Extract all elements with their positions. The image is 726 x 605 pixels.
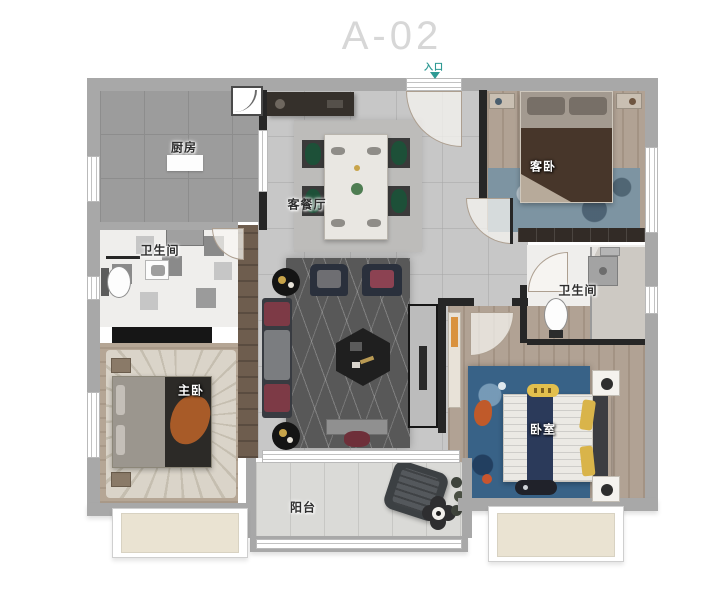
dining-table	[324, 134, 388, 240]
nightstand-decor	[495, 98, 502, 105]
nightstand	[111, 358, 131, 373]
wall-segment	[462, 78, 658, 91]
dining-chair	[302, 140, 324, 168]
dining-chair	[388, 186, 410, 216]
chair-cushion	[391, 141, 407, 165]
room-label-master-bedroom: 主卧	[178, 382, 204, 399]
room-label-bathroom-right: 卫生间	[558, 282, 597, 299]
wall-segment	[479, 90, 487, 198]
place-setting	[367, 219, 381, 227]
chair-cushion	[391, 189, 407, 213]
yellow-toy	[527, 384, 559, 397]
toilet-icon	[101, 262, 131, 302]
pillow	[116, 425, 125, 455]
pillow	[527, 97, 565, 115]
cabinet-decor	[327, 100, 343, 108]
coffee-table-decor	[360, 356, 375, 365]
room-label-bathroom-left: 卫生间	[140, 242, 179, 259]
window	[645, 147, 658, 233]
wall-segment	[462, 458, 472, 538]
sofa-cushion	[264, 302, 290, 326]
kitchen-label-box	[167, 155, 203, 171]
nightstand-decor	[629, 98, 636, 105]
room-label-balcony: 阳台	[290, 499, 316, 516]
nightstand	[616, 93, 642, 109]
side-table	[272, 422, 300, 450]
tv-icon	[419, 346, 427, 390]
room-label-kids-bedroom: 卧室	[530, 421, 556, 438]
nightstand-plant	[601, 484, 613, 496]
plant-icon	[451, 477, 462, 488]
tile	[140, 292, 158, 310]
table-centerpiece	[351, 183, 363, 195]
nightstand	[592, 476, 620, 502]
entrance-arrow-icon	[430, 72, 440, 79]
wall-segment	[520, 285, 527, 343]
table-dot	[436, 511, 441, 516]
kids-wardrobe	[448, 312, 461, 408]
sliding-door	[262, 450, 460, 463]
bay-window	[112, 508, 248, 558]
floor-plan: A-02 入口	[0, 0, 726, 605]
room-label-guest-bedroom: 客卧	[530, 158, 556, 175]
bathroom-sink	[600, 247, 620, 256]
nightstand	[111, 472, 131, 487]
balcony-window	[256, 539, 462, 549]
coffee-table-decor	[352, 362, 360, 368]
pillow	[569, 97, 607, 115]
door-leaf	[510, 198, 513, 244]
chair-cushion	[305, 143, 321, 165]
place-setting	[367, 147, 381, 155]
rug-fish-decor	[474, 400, 492, 426]
sofa-cushion	[264, 330, 290, 380]
nightstand	[489, 93, 515, 109]
bay-window	[488, 506, 624, 562]
rug-dot	[498, 382, 506, 390]
tile	[214, 262, 232, 280]
armchair	[362, 264, 402, 296]
sofa-cushion	[264, 384, 290, 412]
toilet-bowl	[107, 266, 131, 298]
place-setting	[331, 147, 345, 155]
rug-dot	[482, 474, 492, 484]
side-table-decor	[288, 282, 294, 288]
wall-segment	[512, 298, 528, 306]
toilet-icon	[542, 298, 570, 340]
window	[87, 392, 100, 458]
guest-bed	[520, 91, 613, 203]
dining-chair	[388, 138, 410, 168]
room-label-living-dining: 客餐厅	[287, 196, 326, 213]
nightstand-plant	[601, 378, 613, 390]
door-symbol-arc	[235, 90, 257, 112]
toilet-tank	[549, 330, 563, 338]
coffee-table-decor	[350, 342, 362, 351]
door-symbol-icon	[231, 86, 263, 116]
navy-runner	[527, 394, 553, 482]
toy-dots	[534, 388, 552, 393]
table-decor	[354, 165, 360, 171]
side-table-decor	[278, 276, 286, 284]
wall-segment	[527, 339, 645, 345]
bay-window-sill	[121, 513, 239, 553]
cabinet-decor	[275, 99, 285, 109]
page-title: A-02	[58, 14, 726, 59]
whale-toy	[515, 480, 557, 495]
shower-drain	[599, 267, 607, 275]
wall-segment	[106, 256, 140, 259]
sideboard-cabinet	[267, 92, 354, 116]
armchair	[310, 264, 348, 296]
entrance-door-opening	[406, 78, 462, 91]
wall-segment	[259, 192, 267, 230]
armchair-cushion	[317, 270, 341, 288]
side-table-decor	[287, 437, 293, 443]
window	[645, 286, 658, 314]
pillow	[116, 385, 125, 415]
guest-wardrobe	[518, 228, 645, 242]
toy-eye	[523, 485, 528, 490]
kids-bed	[503, 394, 611, 482]
place-setting	[331, 219, 345, 227]
toilet-bowl	[544, 298, 568, 332]
wardrobe-accent	[451, 317, 458, 347]
bay-window-sill	[497, 513, 615, 557]
sofa	[262, 298, 292, 418]
master-wardrobe	[112, 327, 212, 343]
pouf	[344, 431, 370, 447]
window	[87, 276, 100, 300]
nightstand	[592, 370, 620, 396]
room-label-kitchen: 厨房	[171, 139, 197, 156]
tv-console	[408, 304, 438, 428]
kitchen-door	[258, 130, 268, 192]
window	[87, 156, 100, 202]
armchair-cushion	[370, 270, 394, 288]
side-table-decor	[279, 429, 287, 437]
bathroom-sink	[145, 260, 169, 280]
sink-basin	[151, 265, 165, 276]
wall-segment	[438, 298, 446, 433]
tile	[196, 288, 216, 308]
side-table	[272, 268, 300, 296]
hallway-wood-strip	[238, 225, 258, 458]
